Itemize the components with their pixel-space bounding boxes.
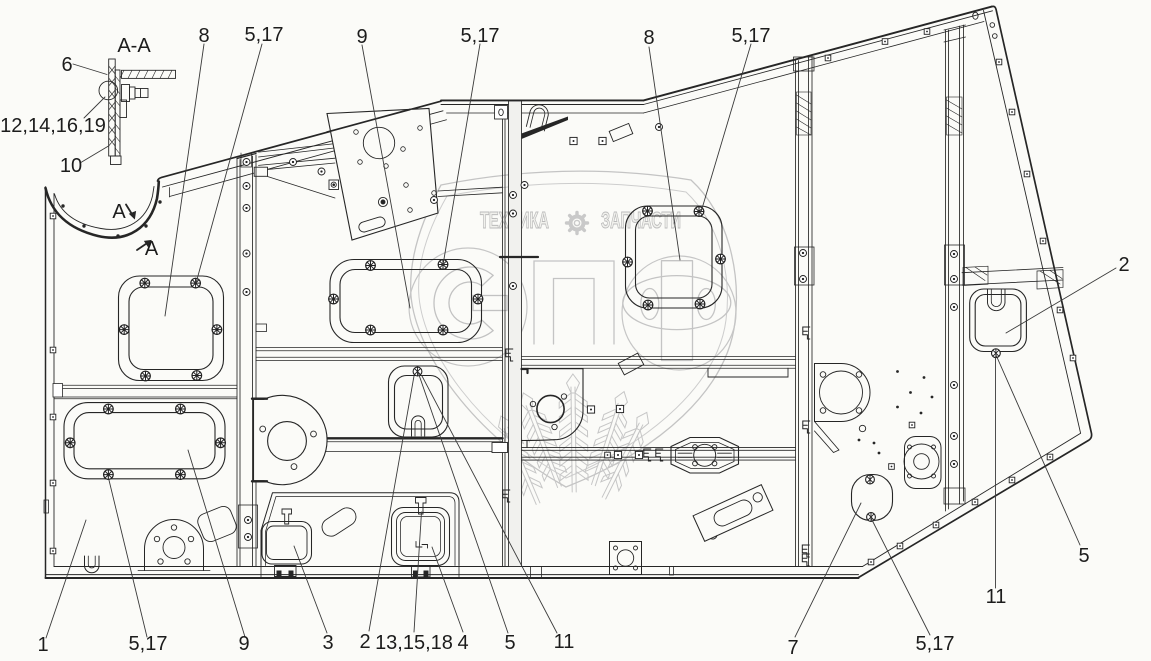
svg-text:9: 9	[356, 26, 367, 48]
svg-text:5: 5	[504, 632, 515, 654]
svg-text:1: 1	[37, 634, 48, 656]
svg-text:12,14,16,19: 12,14,16,19	[0, 115, 106, 137]
svg-text:5,17: 5,17	[245, 24, 284, 46]
svg-text:ЗАПЧАСТИ: ЗАПЧАСТИ	[601, 207, 681, 233]
svg-text:10: 10	[60, 155, 82, 177]
svg-text:4: 4	[457, 632, 468, 654]
svg-text:3: 3	[322, 632, 333, 654]
svg-text:A: A	[112, 201, 126, 223]
svg-text:2: 2	[1118, 254, 1129, 276]
svg-text:5,17: 5,17	[916, 633, 955, 655]
svg-text:2: 2	[359, 631, 370, 653]
svg-text:8: 8	[198, 25, 209, 47]
svg-text:11: 11	[986, 586, 1007, 608]
svg-text:6: 6	[61, 54, 72, 76]
svg-text:13,15,18: 13,15,18	[375, 632, 453, 654]
svg-text:11: 11	[554, 631, 575, 653]
svg-text:9: 9	[238, 633, 249, 655]
svg-text:A-A: A-A	[117, 35, 151, 57]
svg-text:7: 7	[787, 637, 798, 659]
svg-text:5: 5	[1078, 545, 1089, 567]
svg-text:8: 8	[643, 27, 654, 49]
svg-text:5,17: 5,17	[461, 25, 500, 47]
svg-text:A: A	[145, 238, 159, 260]
svg-text:5,17: 5,17	[732, 25, 771, 47]
svg-text:5,17: 5,17	[129, 633, 168, 655]
